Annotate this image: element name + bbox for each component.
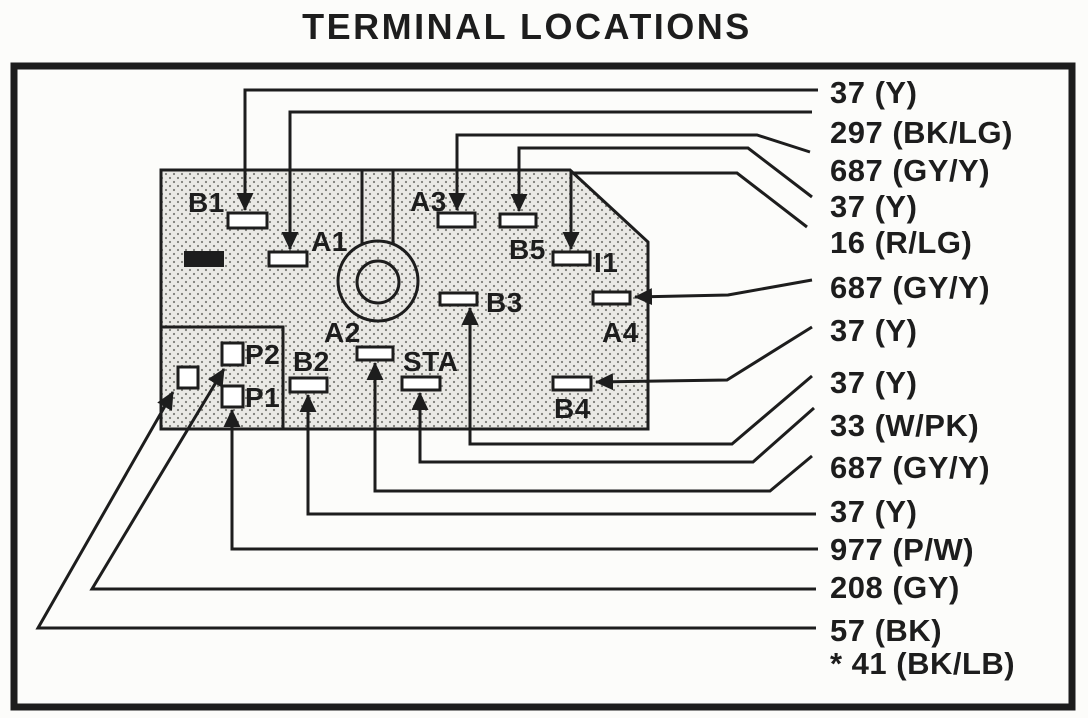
- wire-label: 16 (R/LG): [830, 225, 972, 260]
- terminal-label: B1: [188, 187, 225, 218]
- diagram-title: TERMINAL LOCATIONS: [302, 6, 752, 47]
- solid-marking: [184, 251, 224, 267]
- wire-labels: 37 (Y) 297 (BK/LG) 687 (GY/Y) 37 (Y) 16 …: [830, 75, 1015, 681]
- terminal-p1: [222, 386, 243, 407]
- terminal-label: I1: [594, 247, 618, 278]
- terminal-a4: [593, 292, 630, 304]
- terminal-label: P1: [245, 382, 280, 413]
- wire-label: 297 (BK/LG): [830, 115, 1013, 150]
- terminal-label: A3: [410, 186, 447, 217]
- wire-label: 37 (Y): [830, 365, 917, 400]
- wire-label: 687 (GY/Y): [830, 270, 990, 305]
- terminal-a2: [357, 347, 393, 360]
- terminal-locations-diagram: TERMINAL LOCATIONS B1 A1 A3 B5 I1 B3: [0, 0, 1088, 718]
- terminal-label: B5: [509, 234, 546, 265]
- wire-label: 687 (GY/Y): [830, 450, 990, 485]
- terminal-label: A4: [602, 317, 639, 348]
- wire-label: 687 (GY/Y): [830, 153, 990, 188]
- terminal-sta: [402, 377, 440, 390]
- leader-line-a4: [635, 280, 812, 297]
- wire-label: * 41 (BK/LB): [830, 646, 1015, 681]
- wire-label: 33 (W/PK): [830, 408, 979, 443]
- scanned-diagram-page: TERMINAL LOCATIONS B1 A1 A3 B5 I1 B3: [0, 0, 1088, 718]
- terminal-label: B2: [293, 346, 330, 377]
- terminal-a1: [269, 252, 307, 266]
- wire-label: 37 (Y): [830, 75, 917, 110]
- terminal-label: A2: [324, 317, 361, 348]
- terminal-b2: [290, 378, 327, 392]
- terminal-p2: [222, 343, 243, 365]
- terminal-i1: [553, 252, 590, 265]
- terminal-b1: [228, 213, 267, 228]
- terminal-label: A1: [311, 226, 348, 257]
- wire-label: 57 (BK): [830, 613, 942, 648]
- terminal-b5: [500, 214, 536, 227]
- wire-label: 37 (Y): [830, 313, 917, 348]
- wire-label: 37 (Y): [830, 494, 917, 529]
- terminal-label: P2: [245, 339, 280, 370]
- wire-label: 977 (P/W): [830, 532, 974, 567]
- wire-label: 208 (GY): [830, 570, 960, 605]
- terminal-b3: [440, 293, 477, 305]
- terminal-label: STA: [403, 346, 458, 377]
- wire-label: 37 (Y): [830, 189, 917, 224]
- terminal-unlabeled: [178, 367, 198, 388]
- terminal-label: B4: [554, 393, 591, 424]
- terminal-label: B3: [486, 287, 523, 318]
- leader-line-p1: [232, 410, 818, 549]
- terminal-b4: [553, 377, 591, 390]
